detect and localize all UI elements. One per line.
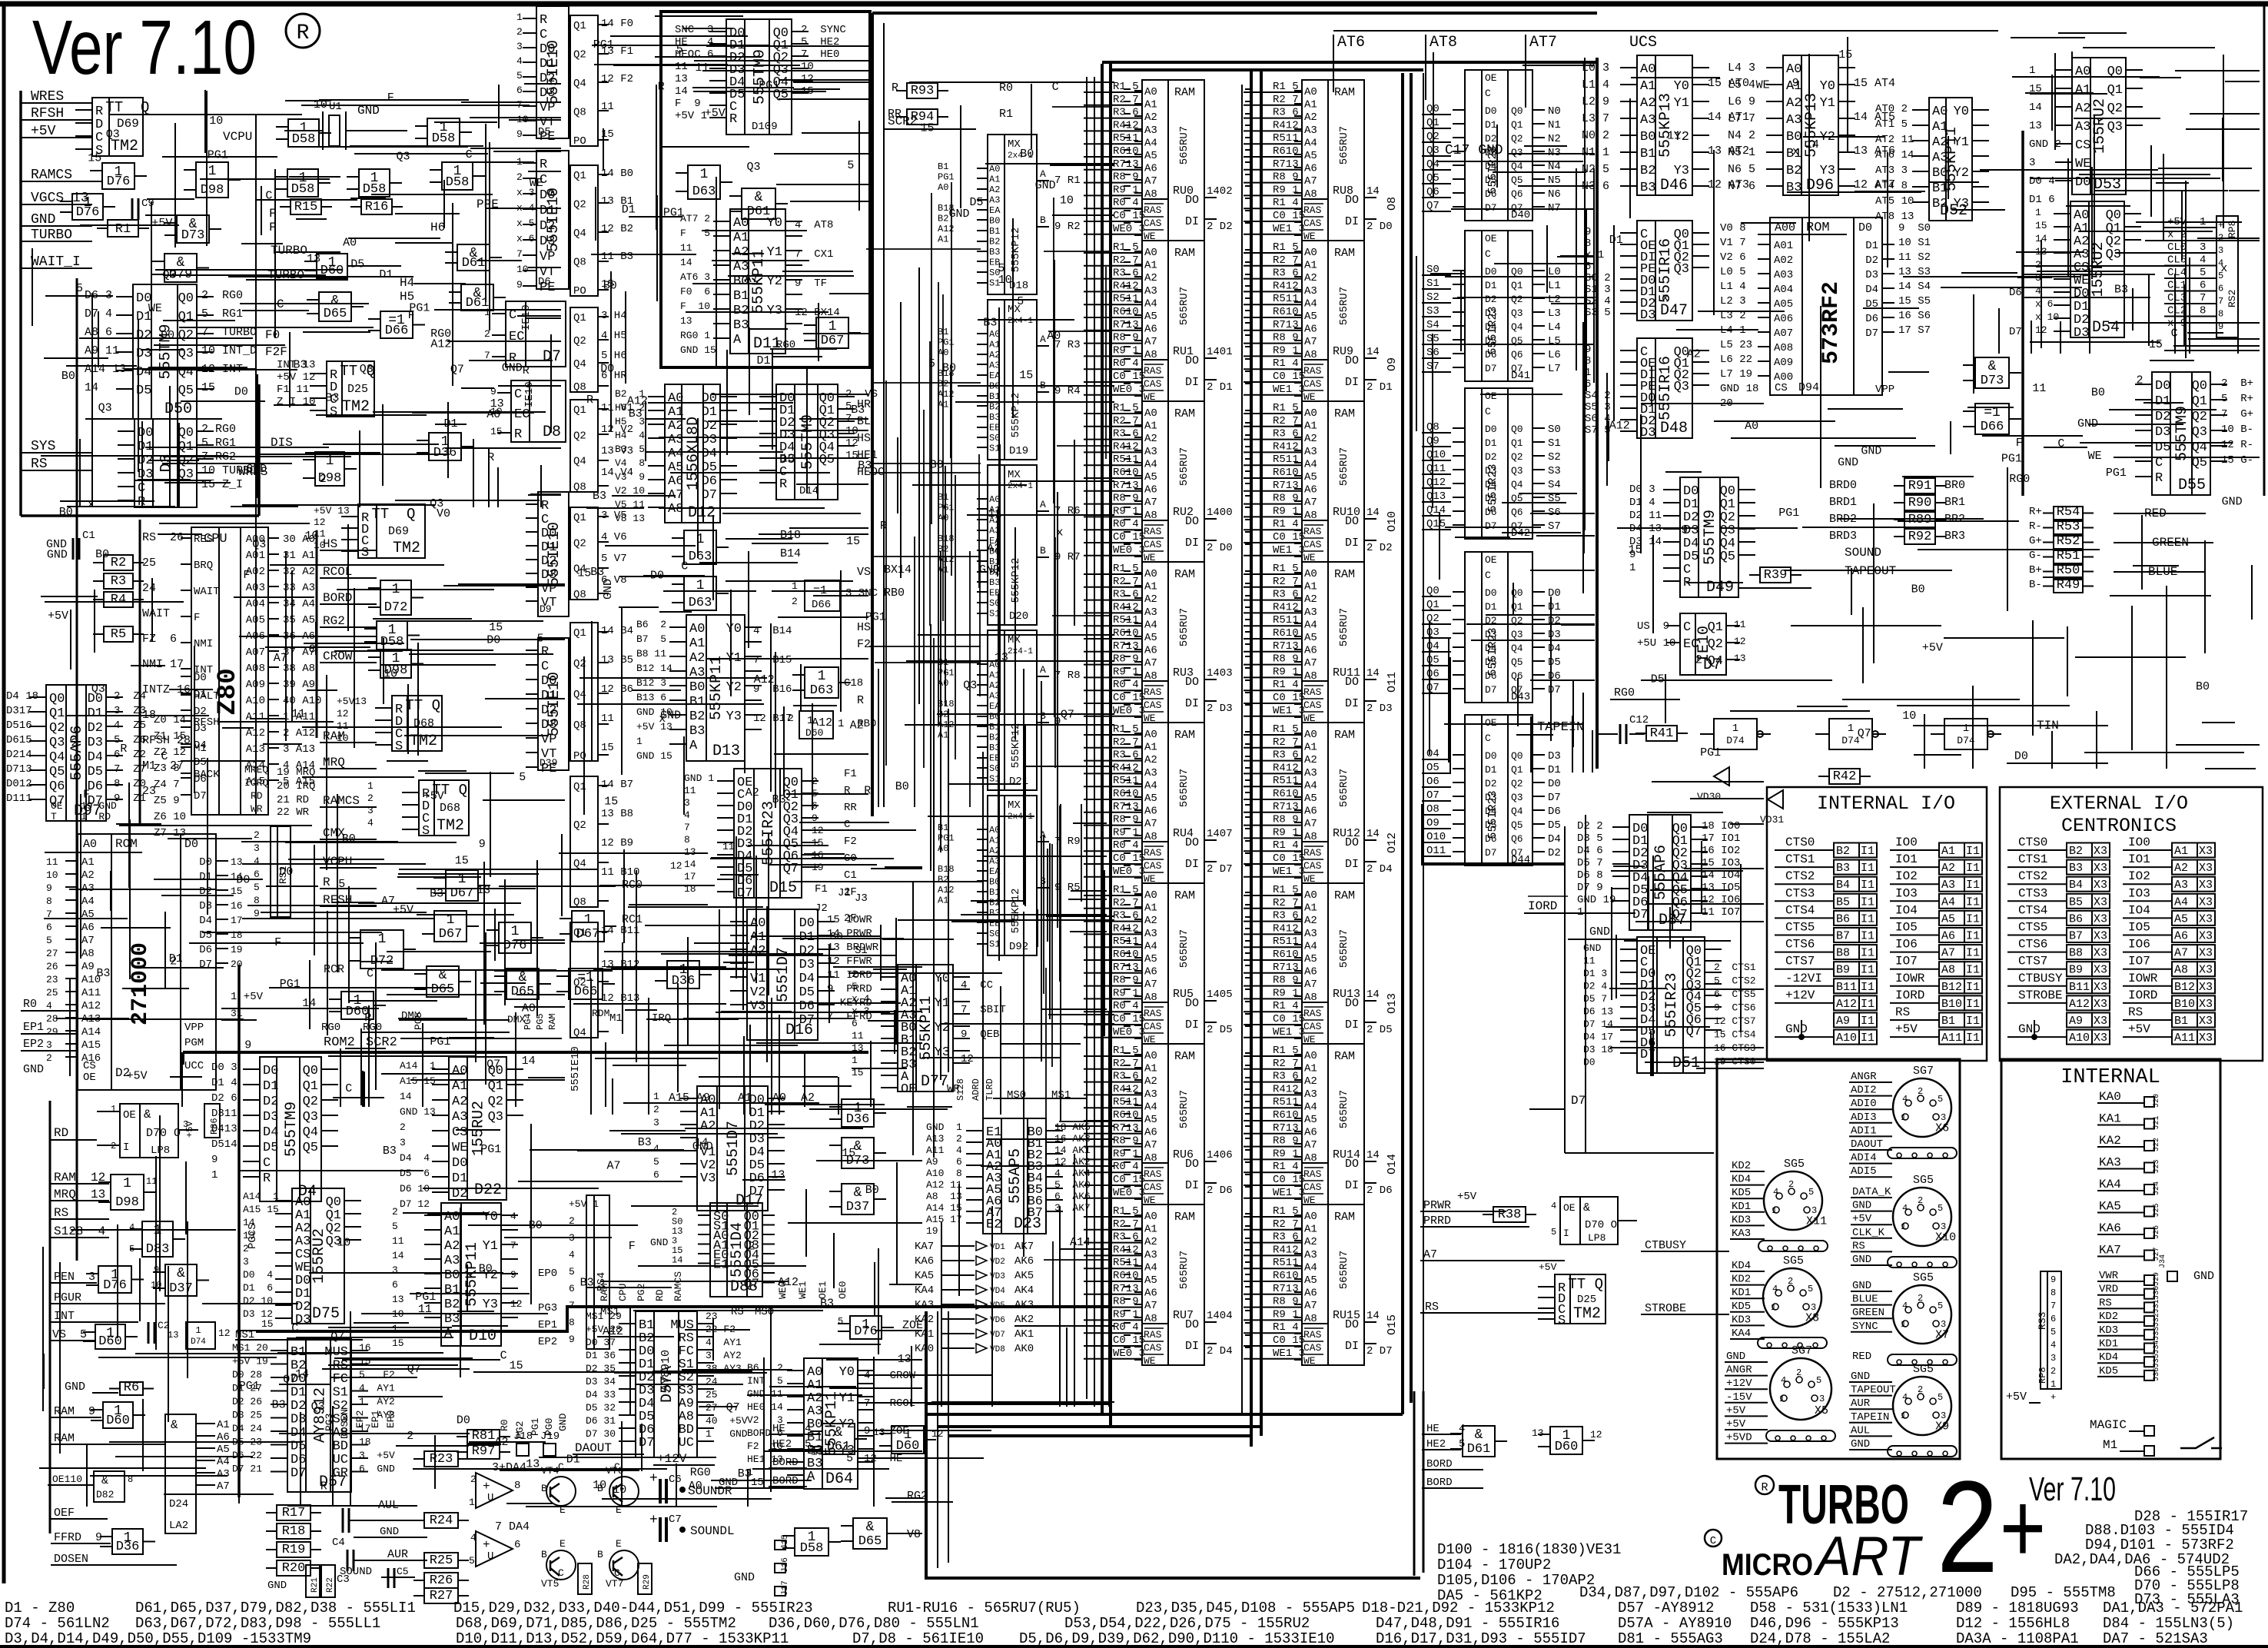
svg-text:2: 2 [400, 1121, 406, 1133]
svg-text:13 IO5: 13 IO5 [1702, 882, 1740, 894]
svg-text:5: 5 [1808, 1284, 1813, 1294]
svg-text:A3: A3 [1941, 879, 1955, 892]
svg-text:17: 17 [684, 871, 696, 882]
svg-text:F 5: F 5 [680, 228, 710, 239]
svg-text:Q3: Q3 [2107, 120, 2123, 135]
svg-text:A4: A4 [1304, 297, 1317, 310]
svg-text:C0 15: C0 15 [1273, 1013, 1305, 1025]
svg-text:C: C [541, 513, 549, 527]
svg-text:B3: B3 [733, 318, 749, 333]
svg-text:A3: A3 [1144, 767, 1157, 779]
svg-text:2: 2 [1937, 1454, 1998, 1600]
svg-text:DI: DI [1345, 1179, 1359, 1192]
svg-text:15: 15 [490, 426, 503, 437]
svg-text:15: 15 [489, 621, 503, 634]
svg-text:5: 5 [653, 1156, 659, 1168]
svg-text:A0: A0 [1932, 105, 1948, 119]
svg-text:RAS: RAS [1144, 204, 1162, 216]
svg-text:A4: A4 [1144, 137, 1157, 149]
svg-text:A0: A0 [1144, 86, 1157, 98]
svg-text:13 BRDWR: 13 BRDWR [827, 942, 879, 954]
svg-text:CAS: CAS [1144, 1181, 1162, 1193]
svg-text:14: 14 [1366, 1310, 1380, 1322]
svg-text:EP1: EP1 [23, 1021, 44, 1034]
svg-text:R9 1: R9 1 [1273, 826, 1299, 839]
svg-text:R1 5: R1 5 [1113, 241, 1139, 254]
svg-text:A12 11: A12 11 [926, 1179, 962, 1191]
svg-text:D7: D7 [2009, 326, 2022, 338]
svg-text:GND 11: GND 11 [747, 1388, 783, 1400]
svg-text:A2: A2 [1144, 915, 1157, 927]
svg-text:9 R2: 9 R2 [1054, 221, 1081, 233]
svg-text:MX: MX [1008, 469, 1021, 481]
svg-text:RAM: RAM [1334, 729, 1355, 742]
svg-text:A7: A7 [1304, 175, 1317, 188]
svg-text:1 GND: 1 GND [706, 1428, 748, 1440]
svg-text:KA2: KA2 [2099, 1134, 2121, 1148]
svg-text:X3: X3 [2094, 879, 2107, 892]
svg-text:B0: B0 [1911, 583, 1925, 596]
svg-text:16 S6: 16 S6 [1898, 310, 1931, 322]
svg-text:NMI 17: NMI 17 [142, 658, 184, 671]
svg-text:D2: D2 [1548, 615, 1561, 627]
svg-text:A4: A4 [1144, 1261, 1157, 1274]
svg-text:A09: A09 [1774, 357, 1793, 369]
svg-text:D36: D36 [116, 1540, 140, 1554]
svg-text:A1: A1 [1304, 902, 1317, 915]
svg-text:4: 4 [367, 817, 374, 829]
svg-text:RD: RD [54, 1126, 68, 1140]
svg-text:1: 1 [792, 580, 798, 592]
svg-text:Y1: Y1 [1954, 135, 1969, 150]
svg-text:7 DA4: 7 DA4 [495, 1520, 530, 1533]
svg-text:A10: A10 [246, 695, 265, 707]
svg-text:A6: A6 [1304, 324, 1317, 336]
svg-text:O9: O9 [1426, 817, 1439, 829]
svg-text:2 D0: 2 D0 [1366, 221, 1393, 233]
svg-text:RG0: RG0 [2009, 473, 2030, 486]
svg-text:Q0: Q0 [1511, 424, 1523, 435]
svg-text:R412: R412 [1273, 762, 1299, 774]
svg-text:RAS: RAS [1144, 526, 1162, 537]
svg-text:+5V: +5V [2006, 1390, 2027, 1404]
svg-text:MREQ: MREQ [244, 764, 268, 776]
svg-text:R8 9: R8 9 [1273, 1135, 1299, 1148]
svg-text:D1: D1 [263, 1079, 278, 1094]
svg-text:13: 13 [1734, 653, 1746, 664]
svg-text:PG2: PG2 [636, 1284, 647, 1301]
svg-text:D1: D1 [757, 354, 771, 367]
svg-text:A8: A8 [1304, 1313, 1317, 1325]
svg-text:4: 4 [2050, 1340, 2056, 1351]
svg-text:R610: R610 [1273, 627, 1299, 640]
svg-text:BD: BD [333, 1440, 348, 1454]
svg-text:D94: D94 [1798, 381, 1819, 394]
svg-text:Q2: Q2 [488, 1095, 503, 1109]
svg-text:1: 1 [829, 319, 837, 334]
svg-text:1: 1 [392, 1323, 398, 1334]
svg-text:F2: F2 [857, 638, 871, 651]
svg-text:R: R [320, 1480, 327, 1493]
svg-text:PGUR: PGUR [54, 1291, 81, 1304]
svg-text:R2 7: R2 7 [1113, 576, 1139, 588]
svg-text:R2 7: R2 7 [1113, 94, 1139, 106]
svg-text:I1: I1 [1966, 879, 1980, 892]
svg-text:OE110: OE110 [52, 1474, 82, 1485]
svg-text:X11: X11 [1806, 1214, 1827, 1228]
svg-text:x: x [1662, 292, 1669, 305]
svg-text:R8 9: R8 9 [1273, 975, 1299, 987]
svg-text:Y3: Y3 [1820, 164, 1835, 178]
svg-text:B7: B7 [1028, 1206, 1043, 1221]
svg-text:WE1 3: WE1 3 [1273, 1187, 1305, 1199]
svg-text:Z6 10: Z6 10 [154, 811, 186, 823]
svg-text:R511: R511 [1273, 1096, 1299, 1108]
svg-text:CAS: CAS [1303, 860, 1322, 872]
svg-text:D73: D73 [181, 228, 205, 243]
svg-text:D6 8: D6 8 [1577, 869, 1603, 882]
svg-text:R1 5: R1 5 [1273, 1045, 1299, 1057]
svg-text:1: 1 [2035, 207, 2041, 218]
svg-text:13: 13 [2029, 120, 2042, 132]
svg-text:13: 13 [307, 253, 320, 266]
svg-text:12 B17: 12 B17 [753, 713, 792, 725]
svg-text:Ver 7.10: Ver 7.10 [32, 5, 257, 91]
svg-text:CAS: CAS [1144, 860, 1162, 872]
svg-text:4 AY1: 4 AY1 [359, 1383, 395, 1394]
svg-text:KD4: KD4 [1732, 1260, 1751, 1272]
svg-text:A6: A6 [1304, 1287, 1317, 1300]
svg-text:15: 15 [261, 1318, 274, 1330]
svg-text:2: 2 [1918, 1384, 1923, 1395]
svg-text:R511: R511 [1113, 1096, 1139, 1108]
svg-text:WAIT: WAIT [194, 586, 220, 598]
svg-text:A4: A4 [1304, 940, 1317, 952]
svg-text:B0: B0 [1786, 130, 1801, 145]
svg-text:I1: I1 [1861, 845, 1875, 858]
svg-text:EP1: EP1 [538, 1319, 557, 1331]
svg-text:GR: GR [333, 1467, 348, 1481]
svg-text:WE1: WE1 [797, 1281, 809, 1299]
svg-text:RS: RS [1852, 1240, 1865, 1252]
svg-text:GND 2: GND 2 [2029, 138, 2061, 151]
svg-text:R0: R0 [999, 81, 1013, 95]
svg-text:+5V 1: +5V 1 [569, 1198, 599, 1210]
svg-text:R8 9: R8 9 [1273, 171, 1299, 184]
svg-text:A3: A3 [2075, 120, 2090, 135]
svg-text:J26: J26 [2153, 1225, 2161, 1239]
svg-text:D4: D4 [1548, 643, 1561, 655]
svg-text:1407: 1407 [1207, 828, 1233, 840]
svg-text:J33: J33 [2153, 1327, 2161, 1341]
svg-text:A2: A2 [689, 651, 705, 666]
svg-text:Q3: Q3 [252, 538, 266, 551]
svg-text:A07: A07 [1774, 327, 1793, 340]
svg-text:N2: N2 [1548, 133, 1561, 145]
svg-text:3: 3 [1811, 1205, 1817, 1216]
svg-text:A0: A0 [1304, 568, 1317, 580]
svg-text:1: 1 [208, 164, 217, 179]
svg-text:R1 5: R1 5 [1113, 402, 1139, 414]
svg-text:A8: A8 [1304, 831, 1317, 843]
svg-text:D0: D0 [1485, 266, 1497, 277]
svg-text:GND: GND [557, 1413, 569, 1431]
svg-text:O5: O5 [1426, 762, 1439, 774]
svg-text:5: 5 [516, 70, 523, 81]
svg-text:WE1 3: WE1 3 [1273, 705, 1305, 717]
svg-text:14: 14 [2029, 101, 2042, 114]
svg-text:SOUND: SOUND [340, 1566, 372, 1578]
svg-text:23: 23 [706, 1311, 718, 1322]
svg-text:A04: A04 [1774, 284, 1793, 296]
svg-text:RAS: RAS [1144, 847, 1162, 859]
svg-text:B3: B3 [858, 460, 872, 473]
svg-text:C0 15: C0 15 [1273, 852, 1305, 865]
svg-text:R: R [487, 451, 494, 464]
svg-text:B9: B9 [2069, 964, 2083, 977]
svg-text:5: 5 [519, 771, 526, 784]
svg-text:R-: R- [2029, 520, 2042, 533]
svg-text:C: C [1485, 406, 1491, 417]
svg-text:27: 27 [706, 1402, 718, 1414]
svg-text:B0: B0 [2091, 387, 2105, 400]
svg-text:D24: D24 [169, 1498, 188, 1510]
svg-text:C: C [844, 819, 850, 831]
svg-text:B3: B3 [983, 316, 997, 329]
svg-text:Q7: Q7 [726, 1401, 740, 1414]
svg-text:Q5: Q5 [1426, 654, 1439, 666]
svg-text:D1: D1 [566, 1453, 580, 1466]
svg-text:AK2: AK2 [1014, 1314, 1034, 1326]
svg-text:13: 13 [526, 1458, 540, 1471]
svg-text:7 HE0: 7 HE0 [801, 48, 839, 61]
svg-text:D1: D1 [444, 417, 458, 430]
svg-text:D3: D3 [1640, 426, 1655, 440]
svg-text:R91: R91 [1908, 479, 1932, 493]
svg-text:15: 15 [88, 152, 101, 165]
svg-text:BORD: BORD [1426, 1477, 1453, 1489]
svg-text:14 V4: 14 V4 [601, 467, 633, 479]
svg-text:Q3: Q3 [1511, 307, 1523, 319]
svg-text:C0 15: C0 15 [1113, 370, 1145, 383]
svg-text:MICRO: MICRO [1722, 1548, 1813, 1582]
svg-text:KD2: KD2 [2099, 1311, 2118, 1323]
svg-text:R511: R511 [1273, 132, 1299, 145]
svg-text:RG0: RG0 [321, 1022, 340, 1034]
svg-text:A1: A1 [1144, 902, 1157, 915]
svg-text:GND 18: GND 18 [1720, 383, 1758, 395]
svg-text:A0: A0 [1304, 1211, 1317, 1223]
svg-text:CAS: CAS [1144, 699, 1162, 711]
svg-text:D24,D78 - 155LA2: D24,D78 - 155LA2 [1750, 1630, 1890, 1647]
svg-text:R22: R22 [326, 1577, 335, 1593]
svg-text:X6: X6 [1935, 1121, 1949, 1135]
svg-text:D4: D4 [1485, 806, 1497, 817]
svg-text:U1: U1 [329, 101, 342, 113]
svg-text:DI: DI [1185, 215, 1199, 228]
svg-text:R: R [1761, 1481, 1768, 1494]
svg-text:I1: I1 [1966, 845, 1980, 858]
svg-text:3: 3 [684, 797, 690, 809]
svg-text:FZ 6: FZ 6 [142, 633, 177, 646]
svg-text:F: F [194, 612, 200, 624]
svg-text:S0: S0 [1548, 424, 1561, 436]
svg-text:A14 15: A14 15 [926, 1202, 962, 1214]
svg-text:D70 O: D70 O [1585, 1219, 1617, 1231]
svg-text:I1: I1 [1861, 912, 1875, 925]
svg-text:18: 18 [359, 1437, 371, 1448]
svg-text:B10: B10 [1941, 998, 1962, 1011]
svg-text:L5 4: L5 4 [1728, 78, 1755, 91]
svg-text:A5: A5 [1304, 1274, 1317, 1287]
svg-text:Q5: Q5 [1720, 550, 1735, 564]
svg-text:B0: B0 [1020, 148, 1034, 161]
svg-text:A12: A12 [938, 885, 955, 895]
svg-text:11: 11 [46, 856, 58, 868]
svg-text:6: 6 [852, 1018, 858, 1029]
svg-text:15 CTS4: 15 CTS4 [1714, 1029, 1756, 1041]
svg-text:15: 15 [812, 837, 824, 849]
svg-text:A5: A5 [1144, 792, 1157, 805]
svg-text:A7: A7 [745, 273, 759, 286]
svg-text:B-: B- [2029, 579, 2042, 591]
svg-text:7 B15: 7 B15 [753, 654, 792, 666]
svg-text:TURBO: TURBO [271, 244, 307, 257]
svg-text:A3: A3 [1304, 606, 1317, 619]
svg-text:RAM 12: RAM 12 [54, 1171, 105, 1184]
svg-text:D514: D514 [211, 1138, 237, 1151]
svg-text:21 RD: 21 RD [277, 794, 309, 806]
svg-text:A7: A7 [1304, 336, 1317, 348]
svg-text:PG1: PG1 [239, 1380, 260, 1393]
svg-text:R8 9: R8 9 [1113, 1135, 1139, 1148]
svg-text:Q5: Q5 [49, 765, 65, 779]
svg-text:2: 2 [792, 596, 798, 607]
svg-text:4: 4 [1902, 1094, 1908, 1105]
svg-text:4: 4 [1781, 1375, 1786, 1386]
svg-text:+12V: +12V [1726, 1377, 1752, 1390]
svg-text:L1: L1 [1548, 280, 1561, 292]
svg-text:SG5: SG5 [1783, 1254, 1804, 1268]
svg-text:WE: WE [1144, 1355, 1156, 1367]
svg-text:1: 1 [195, 1325, 201, 1336]
svg-text:D3: D3 [199, 900, 212, 912]
svg-text:R3: R3 [111, 574, 126, 589]
svg-text:10: 10 [613, 1484, 626, 1497]
svg-text:CL4 5: CL4 5 [2167, 267, 2206, 279]
svg-text:8: 8 [2050, 1287, 2056, 1298]
svg-text:A2: A2 [1304, 272, 1317, 284]
svg-text:Q3: Q3 [488, 1110, 503, 1125]
svg-text:R8 9: R8 9 [1113, 332, 1139, 344]
svg-text:R511: R511 [1113, 293, 1139, 305]
svg-text:3+DA4: 3+DA4 [492, 1461, 526, 1474]
svg-text:GND: GND [1852, 1280, 1871, 1292]
svg-text:Q5: Q5 [1511, 656, 1523, 668]
svg-text:RAS: RAS [1303, 1168, 1322, 1180]
svg-text:A1: A1 [1640, 79, 1655, 94]
svg-text:R511: R511 [1273, 935, 1299, 948]
svg-text:4 V6: 4 V6 [601, 531, 627, 543]
svg-text:A2: A2 [2174, 862, 2188, 875]
svg-text:R412: R412 [1273, 119, 1299, 131]
svg-text:C: C [309, 643, 316, 656]
svg-text:11: 11 [675, 61, 688, 73]
svg-text:14: 14 [680, 257, 692, 268]
svg-text:D1: D1 [1548, 601, 1561, 613]
svg-text:IO1: IO1 [2128, 852, 2150, 866]
svg-text:A2: A2 [700, 1119, 716, 1134]
svg-text:2: 2 [1695, 653, 1702, 666]
svg-text:15: 15 [201, 381, 215, 394]
svg-text:V0 8: V0 8 [1720, 222, 1746, 234]
svg-text:D7: D7 [1485, 363, 1497, 374]
svg-text:A7: A7 [217, 1480, 230, 1493]
svg-text:31: 31 [231, 1008, 243, 1019]
svg-text:A0: A0 [938, 843, 948, 854]
svg-text:UC: UC [679, 1436, 694, 1450]
svg-text:D3: D3 [541, 568, 556, 583]
svg-text:555TM9: 555TM9 [1702, 510, 1719, 565]
svg-text:A5: A5 [1304, 792, 1317, 805]
svg-text:D74: D74 [1726, 735, 1745, 746]
svg-text:L3 7: L3 7 [1582, 112, 1609, 125]
svg-text:B18: B18 [780, 529, 801, 542]
svg-text:CTS5: CTS5 [1785, 921, 1815, 935]
svg-text:Q3: Q3 [430, 497, 443, 510]
svg-text:565RU7: 565RU7 [1338, 769, 1350, 807]
svg-text:Q1: Q1 [2192, 394, 2207, 409]
svg-text:CTS1: CTS1 [1785, 852, 1815, 866]
svg-text:+5V: +5V [1922, 642, 1943, 655]
svg-text:A2: A2 [1687, 348, 1701, 361]
svg-text:KD1: KD1 [1732, 1201, 1751, 1213]
svg-text:+12V: +12V [1785, 988, 1815, 1002]
svg-text:D63,D67,D72,D83,D98 - 555LL1: D63,D67,D72,D83,D98 - 555LL1 [135, 1615, 380, 1632]
svg-text:13: 13 [477, 884, 490, 897]
svg-text:D0: D0 [263, 1064, 278, 1078]
svg-text:B0: B0 [529, 1219, 543, 1232]
svg-text:WE0 3: WE0 3 [1113, 223, 1145, 235]
svg-text:A7: A7 [1304, 1300, 1317, 1312]
svg-text:B3: B3 [629, 407, 643, 420]
svg-text:D60: D60 [98, 1334, 122, 1349]
svg-text:B2: B2 [989, 237, 1000, 248]
svg-text:15 IO3: 15 IO3 [1702, 857, 1740, 869]
svg-text:D6: D6 [1865, 313, 1878, 325]
svg-text:R8 9: R8 9 [1273, 332, 1299, 344]
svg-text:GND: GND [2222, 496, 2243, 509]
svg-text:EP2: EP2 [538, 1336, 557, 1348]
svg-text:565RU7: 565RU7 [1338, 608, 1350, 646]
svg-text:B2: B2 [733, 304, 749, 318]
svg-text:E: E [560, 1538, 566, 1550]
svg-text:3: 3 [1819, 1394, 1825, 1404]
svg-text:D3: D3 [1485, 465, 1497, 477]
svg-text:AUL: AUL [1851, 1424, 1870, 1437]
svg-text:Q2: Q2 [1511, 451, 1523, 463]
svg-text:A15 15: A15 15 [243, 1204, 279, 1215]
svg-text:Q6: Q6 [1511, 188, 1523, 200]
svg-text:R52: R52 [2057, 534, 2080, 549]
svg-text:A12: A12 [778, 1276, 799, 1289]
svg-text:S1 3: S1 3 [1585, 284, 1611, 296]
svg-text:D69: D69 [117, 117, 139, 131]
svg-text:I1: I1 [1966, 895, 1980, 909]
svg-text:CL3 7: CL3 7 [2167, 292, 2206, 304]
svg-text:B2: B2 [1932, 197, 1948, 211]
svg-text:15: 15 [1629, 543, 1642, 557]
